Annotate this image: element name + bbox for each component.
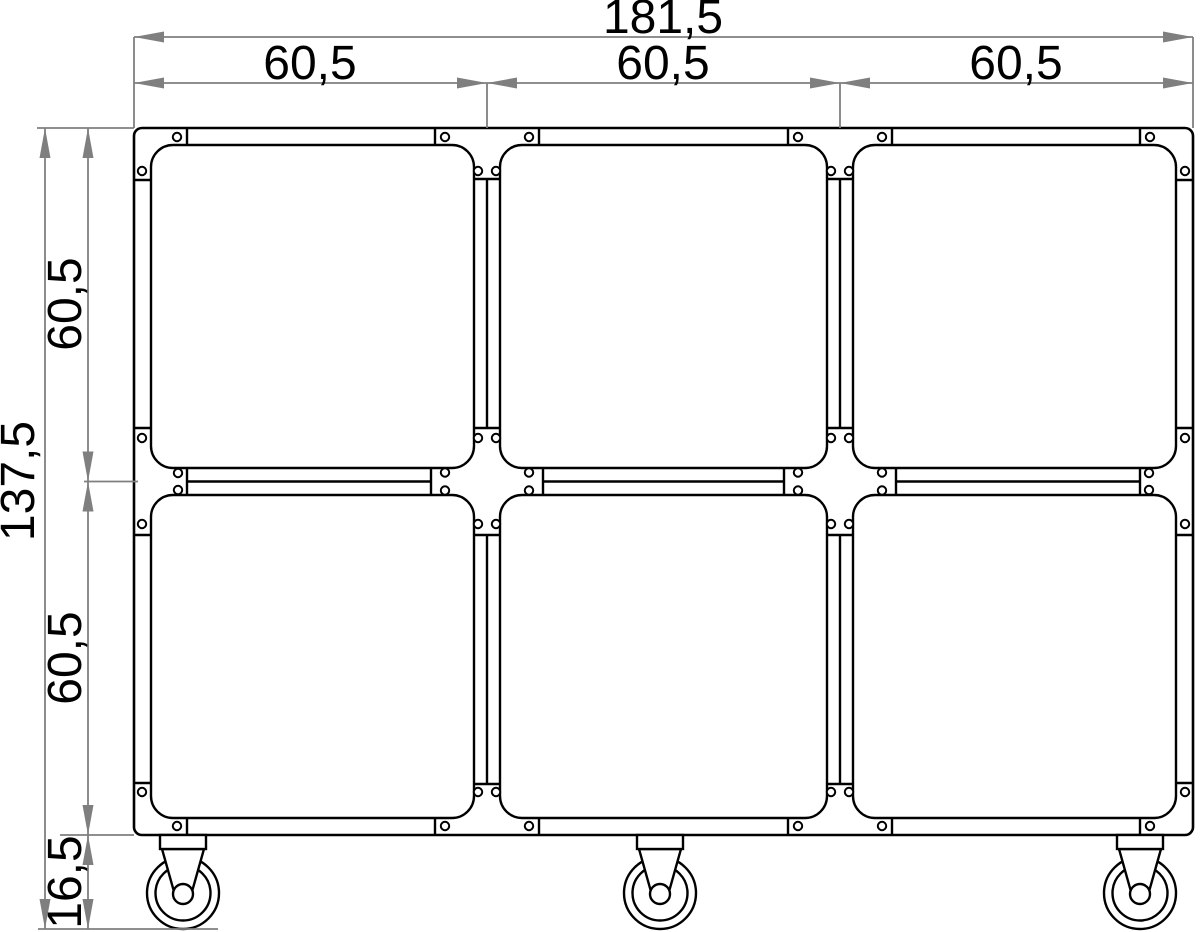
dimension-arrow <box>810 78 840 89</box>
screw-hole <box>492 788 500 796</box>
caster-hub <box>1130 884 1150 904</box>
screw-hole <box>441 133 449 141</box>
drawing-canvas: 181,5 60,5 60,5 60,5 137,5 60,5 60,5 16,… <box>0 0 1200 932</box>
screw-hole <box>492 520 500 528</box>
screw-hole <box>827 167 835 175</box>
dimension-arrow <box>487 78 517 89</box>
screw-hole <box>1181 167 1189 175</box>
screw-hole <box>878 486 886 494</box>
caster <box>624 835 696 929</box>
screw-hole <box>827 520 835 528</box>
screw-hole <box>525 822 533 830</box>
caster <box>147 835 219 929</box>
dimension-arrow <box>83 805 94 835</box>
dimension-arrow <box>1163 32 1193 43</box>
screw-hole <box>441 486 449 494</box>
caster-hub <box>173 884 193 904</box>
dimension-arrow <box>83 452 94 482</box>
screw-hole <box>525 468 533 476</box>
screw-hole <box>441 468 449 476</box>
caster-mount <box>1117 835 1163 849</box>
screw-hole <box>1146 822 1154 830</box>
dimension-arrow <box>840 78 870 89</box>
screw-hole <box>1181 788 1189 796</box>
screw-hole <box>138 167 146 175</box>
screw-hole <box>845 167 853 175</box>
shelf-cell <box>500 495 827 818</box>
shelf-cell <box>151 145 474 468</box>
screw-hole <box>138 520 146 528</box>
dimension-arrow <box>40 128 51 158</box>
screw-hole <box>794 133 802 141</box>
technical-drawing: 181,5 60,5 60,5 60,5 137,5 60,5 60,5 16,… <box>0 0 1200 932</box>
screw-hole <box>827 788 835 796</box>
screw-hole <box>474 520 482 528</box>
screw-hole <box>1145 469 1153 477</box>
screw-hole <box>492 167 500 175</box>
screw-hole <box>138 434 146 442</box>
caster-mount <box>637 835 683 849</box>
dimension-arrow <box>134 78 164 89</box>
screw-hole <box>174 486 182 494</box>
screw-hole <box>1146 133 1154 141</box>
shelf-cell <box>853 145 1176 468</box>
screw-hole <box>173 133 181 141</box>
screw-hole <box>794 486 802 494</box>
dim-label-total-height: 137,5 <box>0 421 45 541</box>
shelf-unit <box>134 128 1193 929</box>
shelf-cell <box>151 495 474 818</box>
screw-hole <box>138 788 146 796</box>
screw-hole <box>474 434 482 442</box>
dim-label-col-3: 60,5 <box>969 37 1062 90</box>
screw-hole <box>878 468 886 476</box>
screw-hole <box>794 822 802 830</box>
screw-hole <box>1181 434 1189 442</box>
caster-hub <box>650 884 670 904</box>
caster-mount <box>160 835 206 849</box>
screw-hole <box>845 520 853 528</box>
dimension-arrow <box>83 128 94 158</box>
dim-label-row-1: 60,5 <box>39 257 92 350</box>
dimension-arrow <box>134 32 164 43</box>
screw-hole <box>492 434 500 442</box>
dim-label-caster-height: 16,5 <box>39 835 92 928</box>
dimension-arrow <box>1163 78 1193 89</box>
screw-hole <box>173 822 181 830</box>
screw-hole <box>845 788 853 796</box>
caster <box>1104 835 1176 929</box>
screw-hole <box>441 822 449 830</box>
dim-label-col-2: 60,5 <box>616 37 709 90</box>
shelf-cell <box>853 495 1176 818</box>
screw-hole <box>1145 486 1153 494</box>
screw-hole <box>525 133 533 141</box>
screw-hole <box>174 469 182 477</box>
shelf-cell <box>500 145 827 468</box>
screw-hole <box>794 468 802 476</box>
dimension-arrow <box>457 78 487 89</box>
screw-hole <box>878 822 886 830</box>
screw-hole <box>474 788 482 796</box>
dim-label-row-2: 60,5 <box>39 611 92 704</box>
dim-label-col-1: 60,5 <box>263 37 356 90</box>
screw-hole <box>525 486 533 494</box>
screw-hole <box>827 434 835 442</box>
dimension-arrow <box>83 482 94 512</box>
screw-hole <box>1181 520 1189 528</box>
screw-hole <box>474 167 482 175</box>
screw-hole <box>845 434 853 442</box>
screw-hole <box>878 133 886 141</box>
